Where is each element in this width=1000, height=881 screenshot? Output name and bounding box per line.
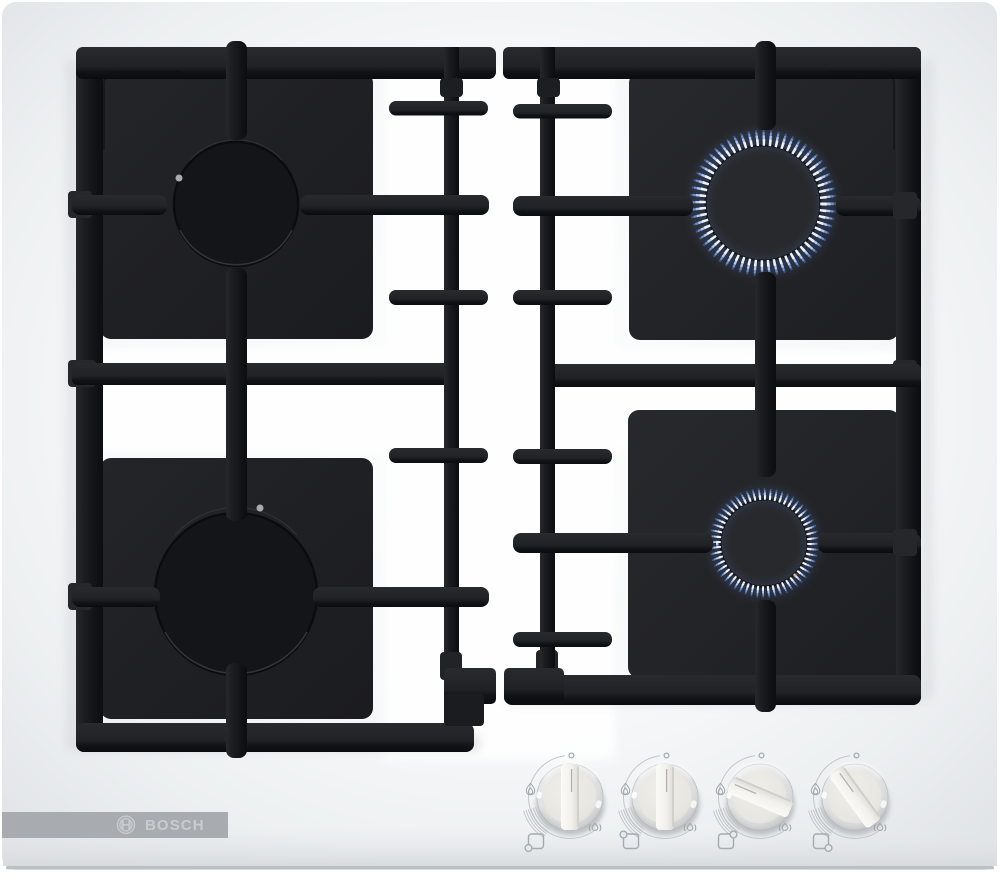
svg-text:BOSCH: BOSCH [145,817,205,834]
